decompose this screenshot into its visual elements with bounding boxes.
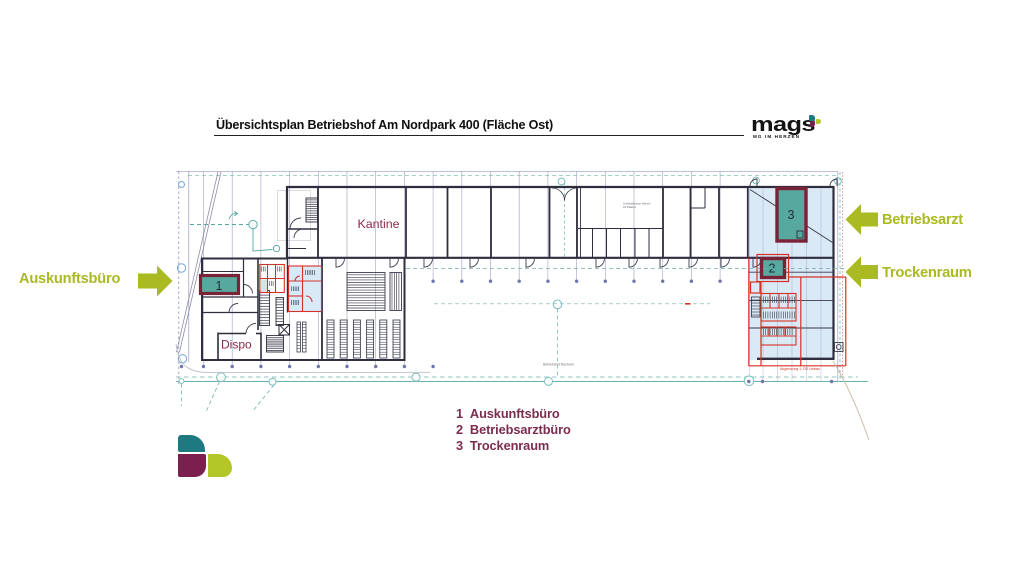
svg-text:3: 3 xyxy=(788,208,795,222)
svg-text:24 Plaetze: 24 Plaetze xyxy=(623,205,637,209)
svg-text:Abgrenzung 1. OG Umbau: Abgrenzung 1. OG Umbau xyxy=(780,367,820,371)
svg-text:Dispo: Dispo xyxy=(221,338,252,352)
svg-text:Kantine: Kantine xyxy=(358,217,400,231)
svg-text:Betriebshof Bestand: Betriebshof Bestand xyxy=(543,363,574,367)
svg-text:1: 1 xyxy=(216,279,223,293)
